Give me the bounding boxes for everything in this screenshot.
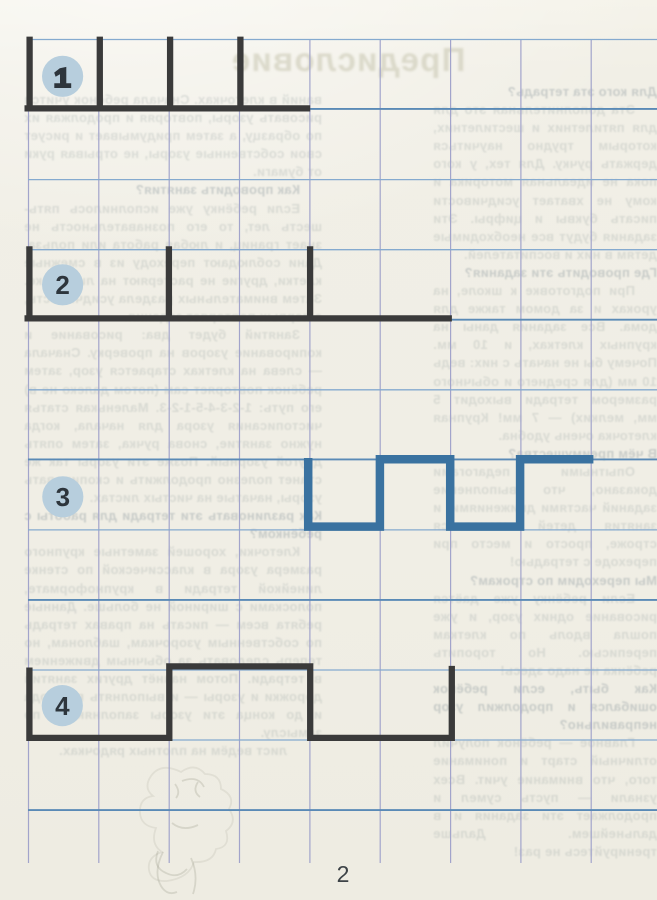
svg-text:4: 4	[55, 691, 70, 721]
svg-text:3: 3	[56, 482, 70, 512]
svg-text:2: 2	[55, 270, 69, 300]
